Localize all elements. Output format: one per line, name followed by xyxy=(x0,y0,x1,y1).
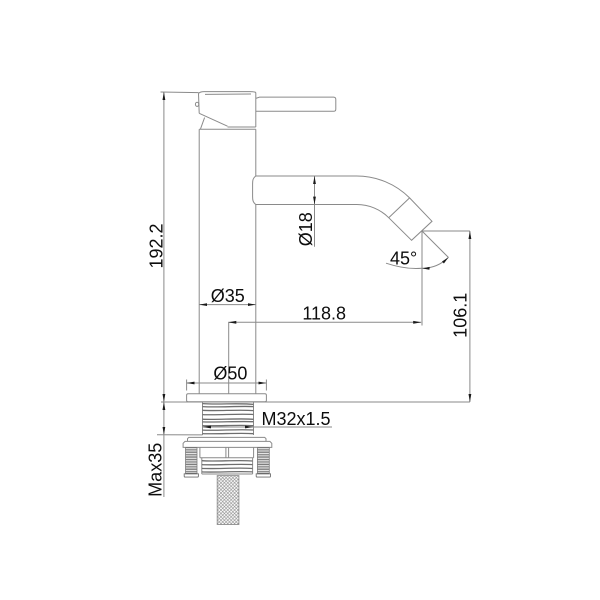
svg-text:118.8: 118.8 xyxy=(302,304,346,324)
svg-text:Ø18: Ø18 xyxy=(296,212,316,246)
svg-text:45°: 45° xyxy=(390,249,417,269)
svg-text:Ø50: Ø50 xyxy=(213,364,247,384)
svg-text:M32x1.5: M32x1.5 xyxy=(261,409,330,429)
svg-text:Max35: Max35 xyxy=(146,443,166,497)
svg-text:192.2: 192.2 xyxy=(147,223,167,268)
svg-text:106.1: 106.1 xyxy=(451,293,471,338)
svg-text:Ø35: Ø35 xyxy=(211,286,245,306)
